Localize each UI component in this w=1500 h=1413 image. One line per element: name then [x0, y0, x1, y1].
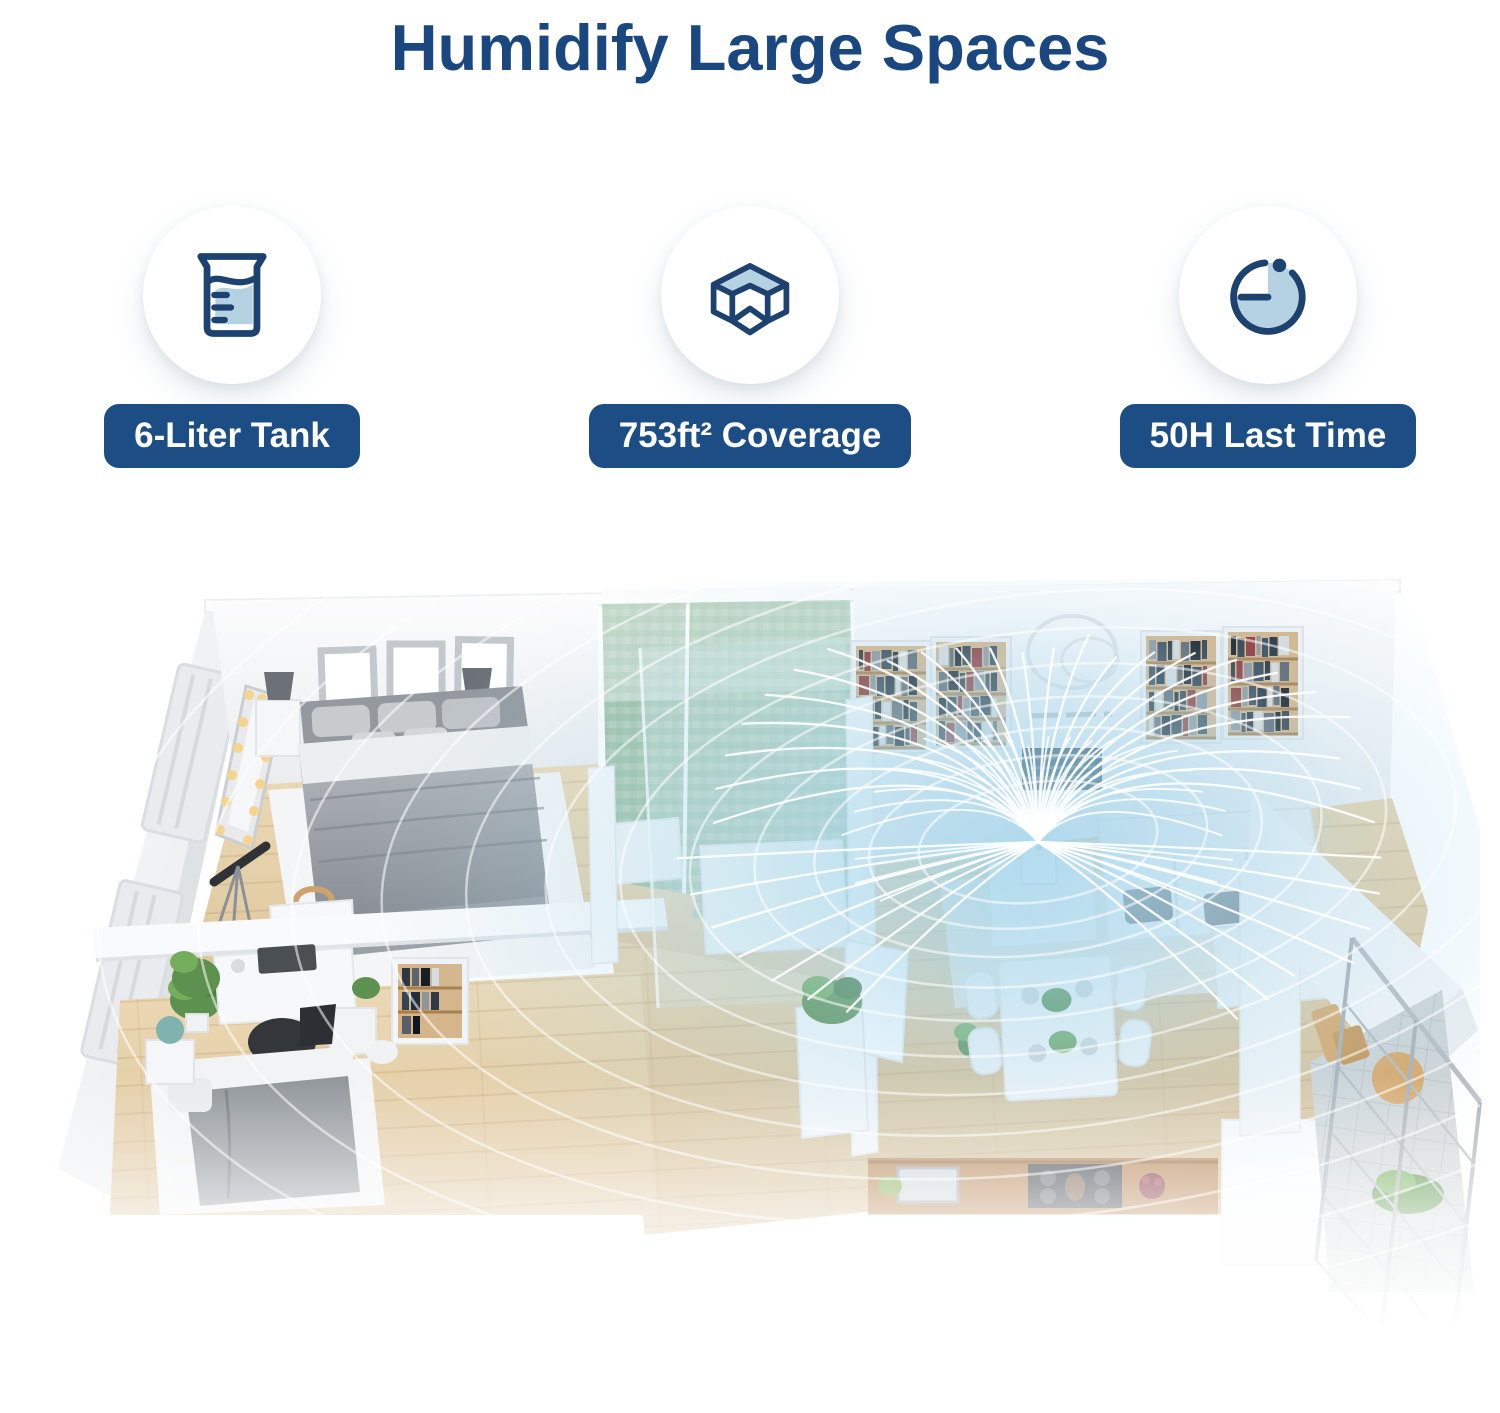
feature-runtime: 50H Last Time — [1068, 206, 1468, 468]
coverage-badge: 753ft² Coverage — [589, 404, 912, 468]
feature-row: 6-Liter Tank 753ft² Coverage 50H Last Ti — [0, 206, 1500, 468]
timer-icon — [1216, 243, 1320, 347]
desk-lamp — [231, 959, 245, 973]
tank-badge: 6-Liter Tank — [104, 404, 360, 468]
page-title: Humidify Large Spaces — [0, 0, 1500, 85]
feature-coverage: 753ft² Coverage — [550, 206, 950, 468]
timer-icon-circle — [1179, 206, 1357, 384]
laptop — [257, 944, 317, 974]
floorplan-illustration — [0, 560, 1500, 1413]
bottom-fade — [0, 1075, 1500, 1330]
room-coverage-icon — [698, 243, 802, 347]
runtime-badge: 50H Last Time — [1120, 404, 1417, 468]
product-infographic: { "header": { "title": "Humidify Large S… — [0, 0, 1500, 1413]
room-coverage-icon-circle — [661, 206, 839, 384]
water-tank-icon — [180, 243, 284, 347]
pouf — [366, 1040, 398, 1064]
teal-lamp — [156, 1016, 184, 1044]
feature-tank: 6-Liter Tank — [32, 206, 432, 468]
water-tank-icon-circle — [143, 206, 321, 384]
